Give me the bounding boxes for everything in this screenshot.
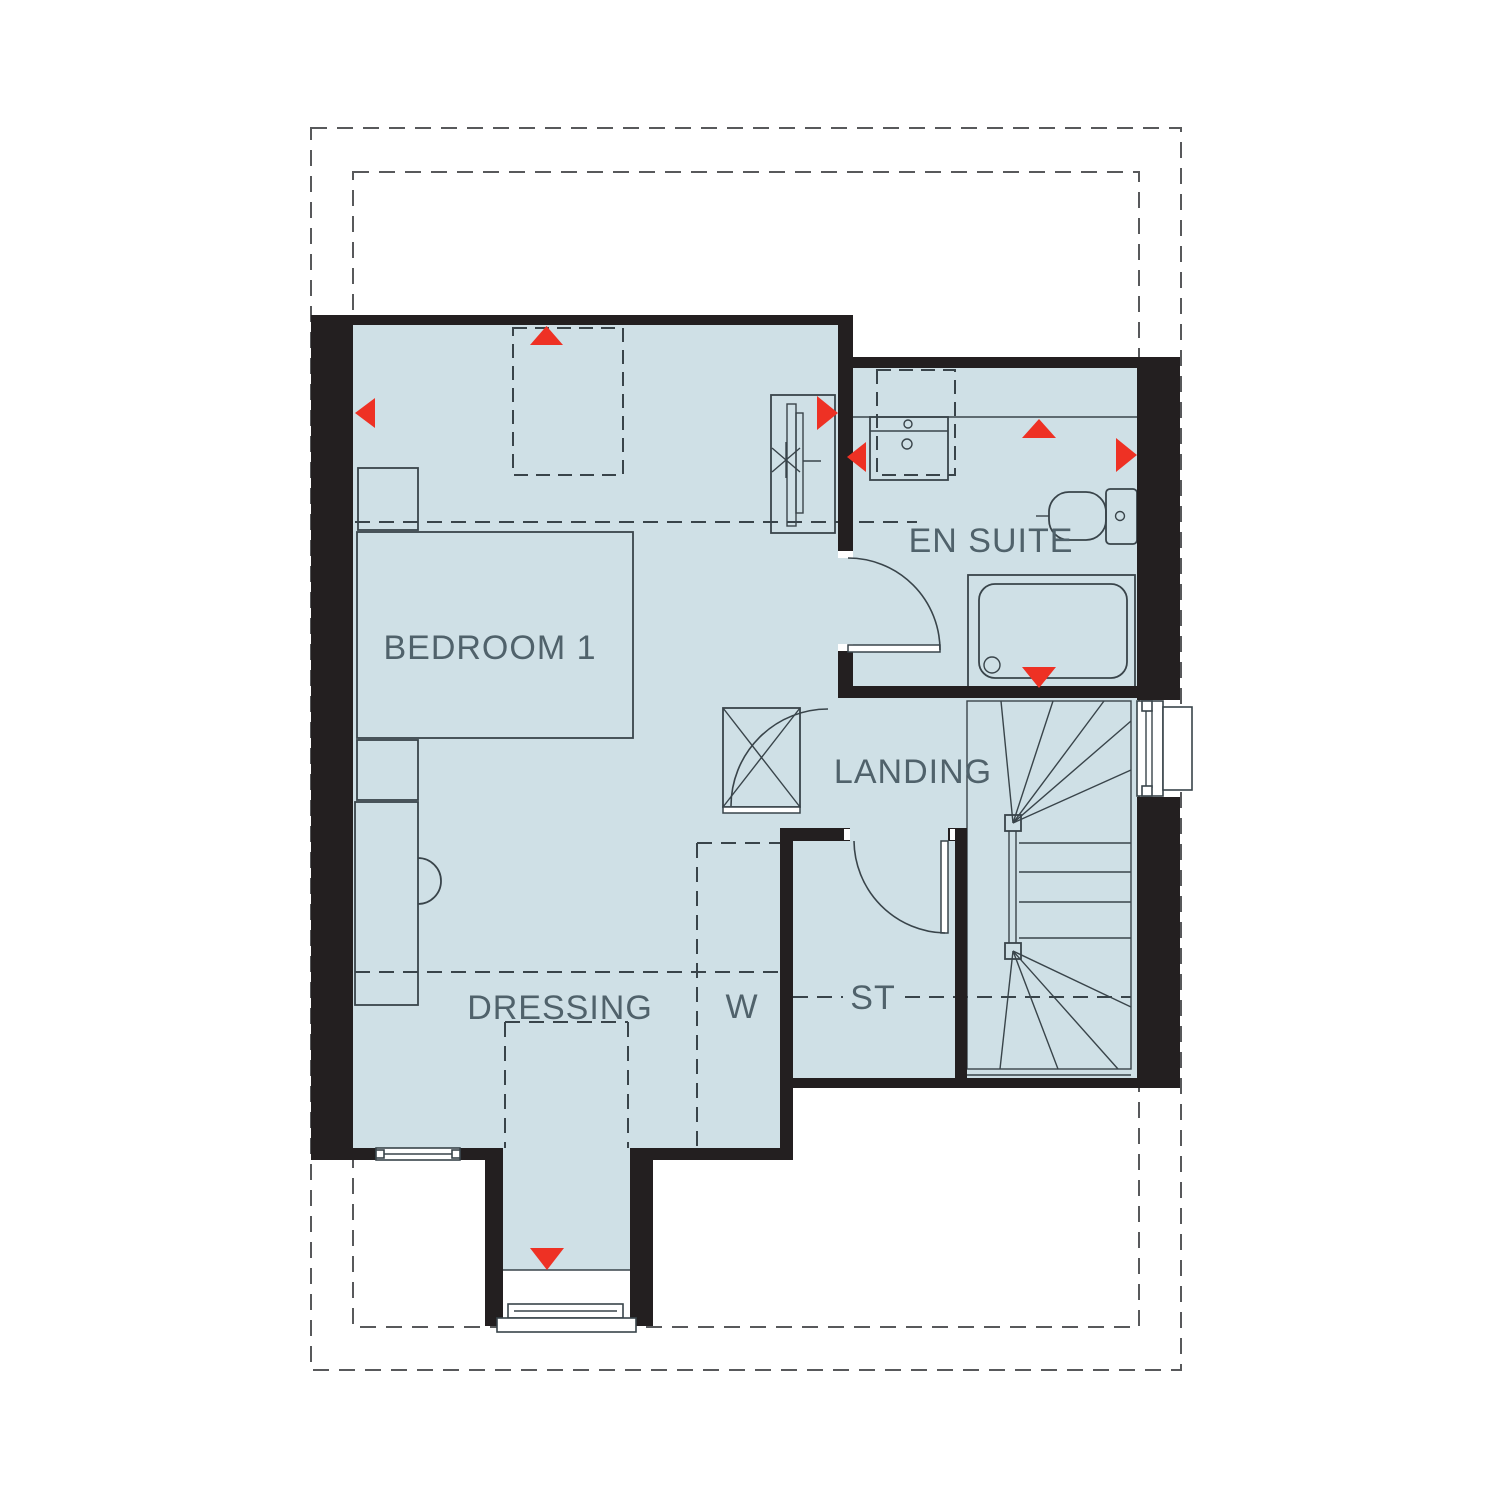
wall-bottom-left-1 (311, 1148, 376, 1160)
cap-ensuite-door-top (838, 551, 853, 558)
cap-st-door-right (950, 829, 955, 840)
bedroom-window (376, 1148, 460, 1160)
floor-areas (353, 325, 1137, 1270)
bedroom-window-cap (376, 1150, 384, 1158)
wall-left (311, 315, 353, 1160)
stair-window-sill (1163, 707, 1192, 790)
wall-right-lower (1137, 797, 1180, 1088)
floor-bedroom (353, 325, 838, 841)
room-label-store: ST (850, 979, 895, 1017)
stair-window-cap (1142, 701, 1152, 711)
st-door-leaf (941, 841, 948, 933)
cap-st-door-left (844, 829, 850, 840)
room-label-dressing: DRESSING (467, 989, 653, 1027)
stair-window-cap (1142, 786, 1152, 796)
ensuite-door-leaf (848, 645, 940, 652)
stair-window (1137, 701, 1192, 796)
floorplan-canvas: BEDROOM 1 EN SUITE LANDING DRESSING W ST (0, 0, 1500, 1500)
floorplan-svg: BEDROOM 1 EN SUITE LANDING DRESSING W ST (0, 0, 1500, 1500)
wall-bottom-right (783, 1078, 1180, 1088)
wall-top (311, 315, 853, 325)
room-label-wardrobe: W (725, 988, 758, 1026)
bedroom-window-cap (452, 1150, 460, 1158)
wall-st-top-left (783, 828, 850, 841)
room-label-ensuite: EN SUITE (909, 522, 1074, 560)
wall-stair-left (955, 828, 967, 1078)
floor-bay (503, 1148, 630, 1270)
wall-wardrobe (780, 828, 793, 1160)
wall-bay-left (485, 1148, 503, 1326)
wall-right-upper (1137, 357, 1180, 700)
wall-ensuite-bottom (838, 686, 1137, 698)
wall-bottom-left-3 (630, 1148, 793, 1160)
room-label-landing: LANDING (834, 753, 992, 791)
room-label-bedroom1: BEDROOM 1 (383, 629, 596, 667)
bay-window (497, 1270, 636, 1332)
cupboard-door-leaf (723, 807, 800, 813)
wall-ensuite-top (853, 357, 1178, 368)
bay-window-sill (497, 1318, 636, 1332)
wall-bay-right (630, 1148, 653, 1326)
stair-window-frame (1137, 701, 1163, 796)
wall-bedroom-ensuite-upper (838, 315, 853, 558)
